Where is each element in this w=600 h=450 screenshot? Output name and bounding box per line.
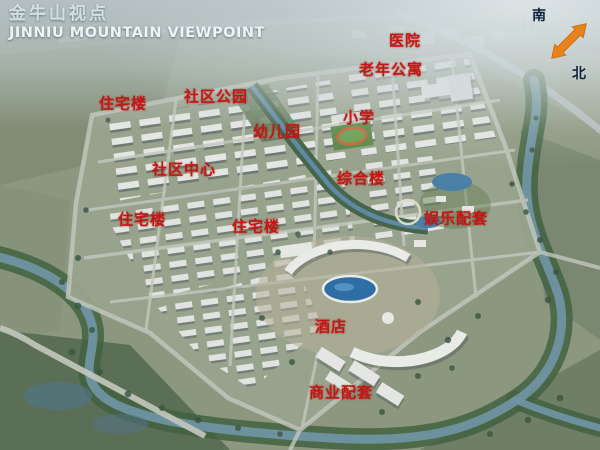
compass-arrow-icon xyxy=(543,15,595,67)
map-label-entertainment-amenities: 娱乐配套 xyxy=(424,208,488,229)
viewpoint-title: 金牛山视点 JINNIU MOUNTAIN VIEWPOINT xyxy=(9,5,265,41)
map-label-commercial-amenities: 商业配套 xyxy=(309,382,373,403)
map-label-hotel: 酒店 xyxy=(315,316,347,337)
map-label-kindergarten: 幼儿园 xyxy=(253,121,301,142)
map-label-primary-school: 小学 xyxy=(343,107,375,128)
aerial-rendering xyxy=(0,0,600,450)
aerial-masterplan-view: 金牛山视点 JINNIU MOUNTAIN VIEWPOINT 南 北 医院 老… xyxy=(0,0,600,450)
map-label-complex-building: 综合楼 xyxy=(337,168,385,189)
map-label-senior-apartments: 老年公寓 xyxy=(359,59,423,80)
title-chinese: 金牛山视点 xyxy=(9,5,265,25)
title-english: JINNIU MOUNTAIN VIEWPOINT xyxy=(9,25,265,42)
map-label-residential-2: 住宅楼 xyxy=(118,209,166,230)
map-label-community-center: 社区中心 xyxy=(152,159,216,180)
map-label-community-park: 社区公园 xyxy=(184,86,248,107)
map-label-hospital: 医院 xyxy=(389,30,421,51)
map-label-residential-3: 住宅楼 xyxy=(232,216,280,237)
map-label-residential-1: 住宅楼 xyxy=(99,93,147,114)
compass-north-label: 北 xyxy=(572,63,586,83)
